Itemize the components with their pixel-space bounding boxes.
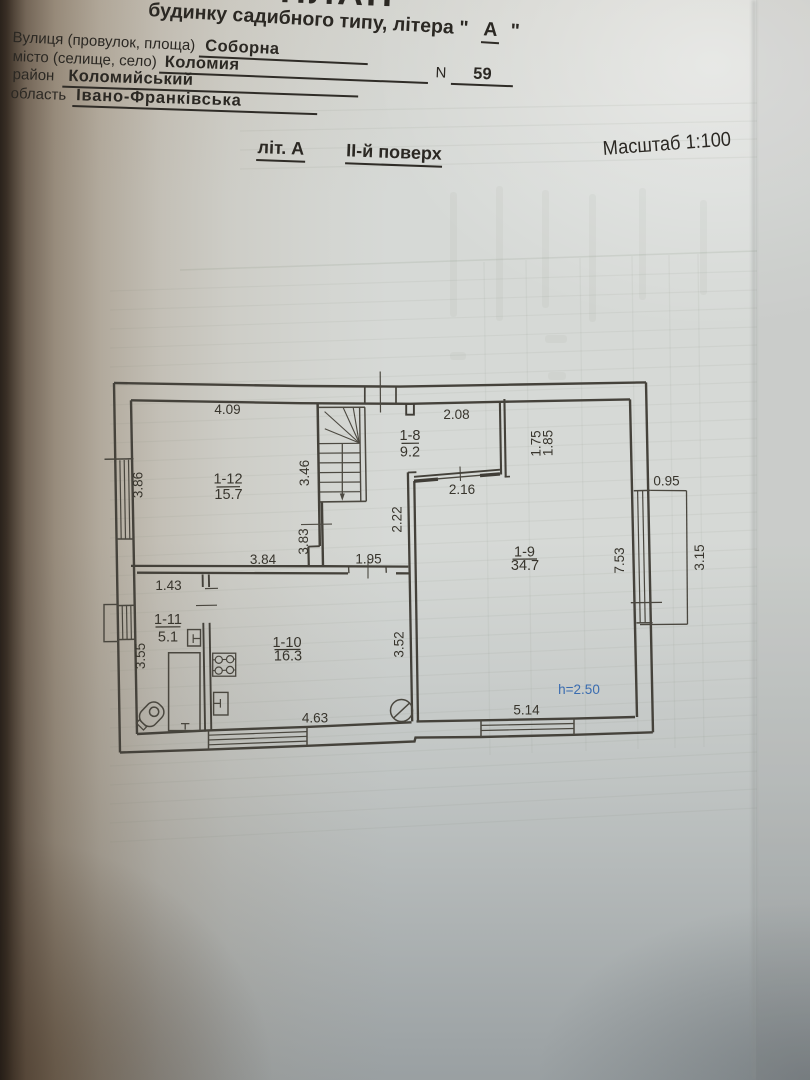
- svg-text:34.7: 34.7: [511, 558, 539, 574]
- svg-text:1-12: 1-12: [213, 472, 242, 488]
- svg-text:1-8: 1-8: [400, 428, 421, 444]
- svg-text:1.95: 1.95: [355, 552, 381, 567]
- svg-text:2.08: 2.08: [443, 407, 469, 422]
- svg-text:2.16: 2.16: [449, 482, 475, 497]
- svg-text:4.63: 4.63: [302, 711, 328, 726]
- svg-text:h=2.50: h=2.50: [558, 682, 600, 697]
- svg-text:9.2: 9.2: [400, 445, 420, 461]
- svg-text:3.55: 3.55: [133, 643, 148, 669]
- svg-text:3.86: 3.86: [131, 472, 146, 498]
- svg-text:15.7: 15.7: [214, 487, 242, 503]
- svg-text:16.3: 16.3: [274, 649, 302, 665]
- svg-text:1.85: 1.85: [541, 430, 556, 456]
- svg-text:3.52: 3.52: [392, 631, 407, 657]
- svg-text:1-11: 1-11: [154, 612, 182, 628]
- svg-text:2.22: 2.22: [390, 506, 405, 532]
- svg-text:3.15: 3.15: [692, 544, 707, 570]
- svg-text:5.1: 5.1: [158, 630, 178, 646]
- svg-text:0.95: 0.95: [653, 474, 679, 489]
- svg-text:3.46: 3.46: [297, 460, 312, 486]
- svg-text:5.14: 5.14: [513, 703, 540, 718]
- svg-text:3.84: 3.84: [250, 552, 277, 567]
- svg-text:7.53: 7.53: [612, 547, 627, 573]
- svg-text:4.09: 4.09: [214, 402, 240, 417]
- svg-text:3.83: 3.83: [296, 528, 311, 554]
- svg-text:1.43: 1.43: [155, 578, 181, 593]
